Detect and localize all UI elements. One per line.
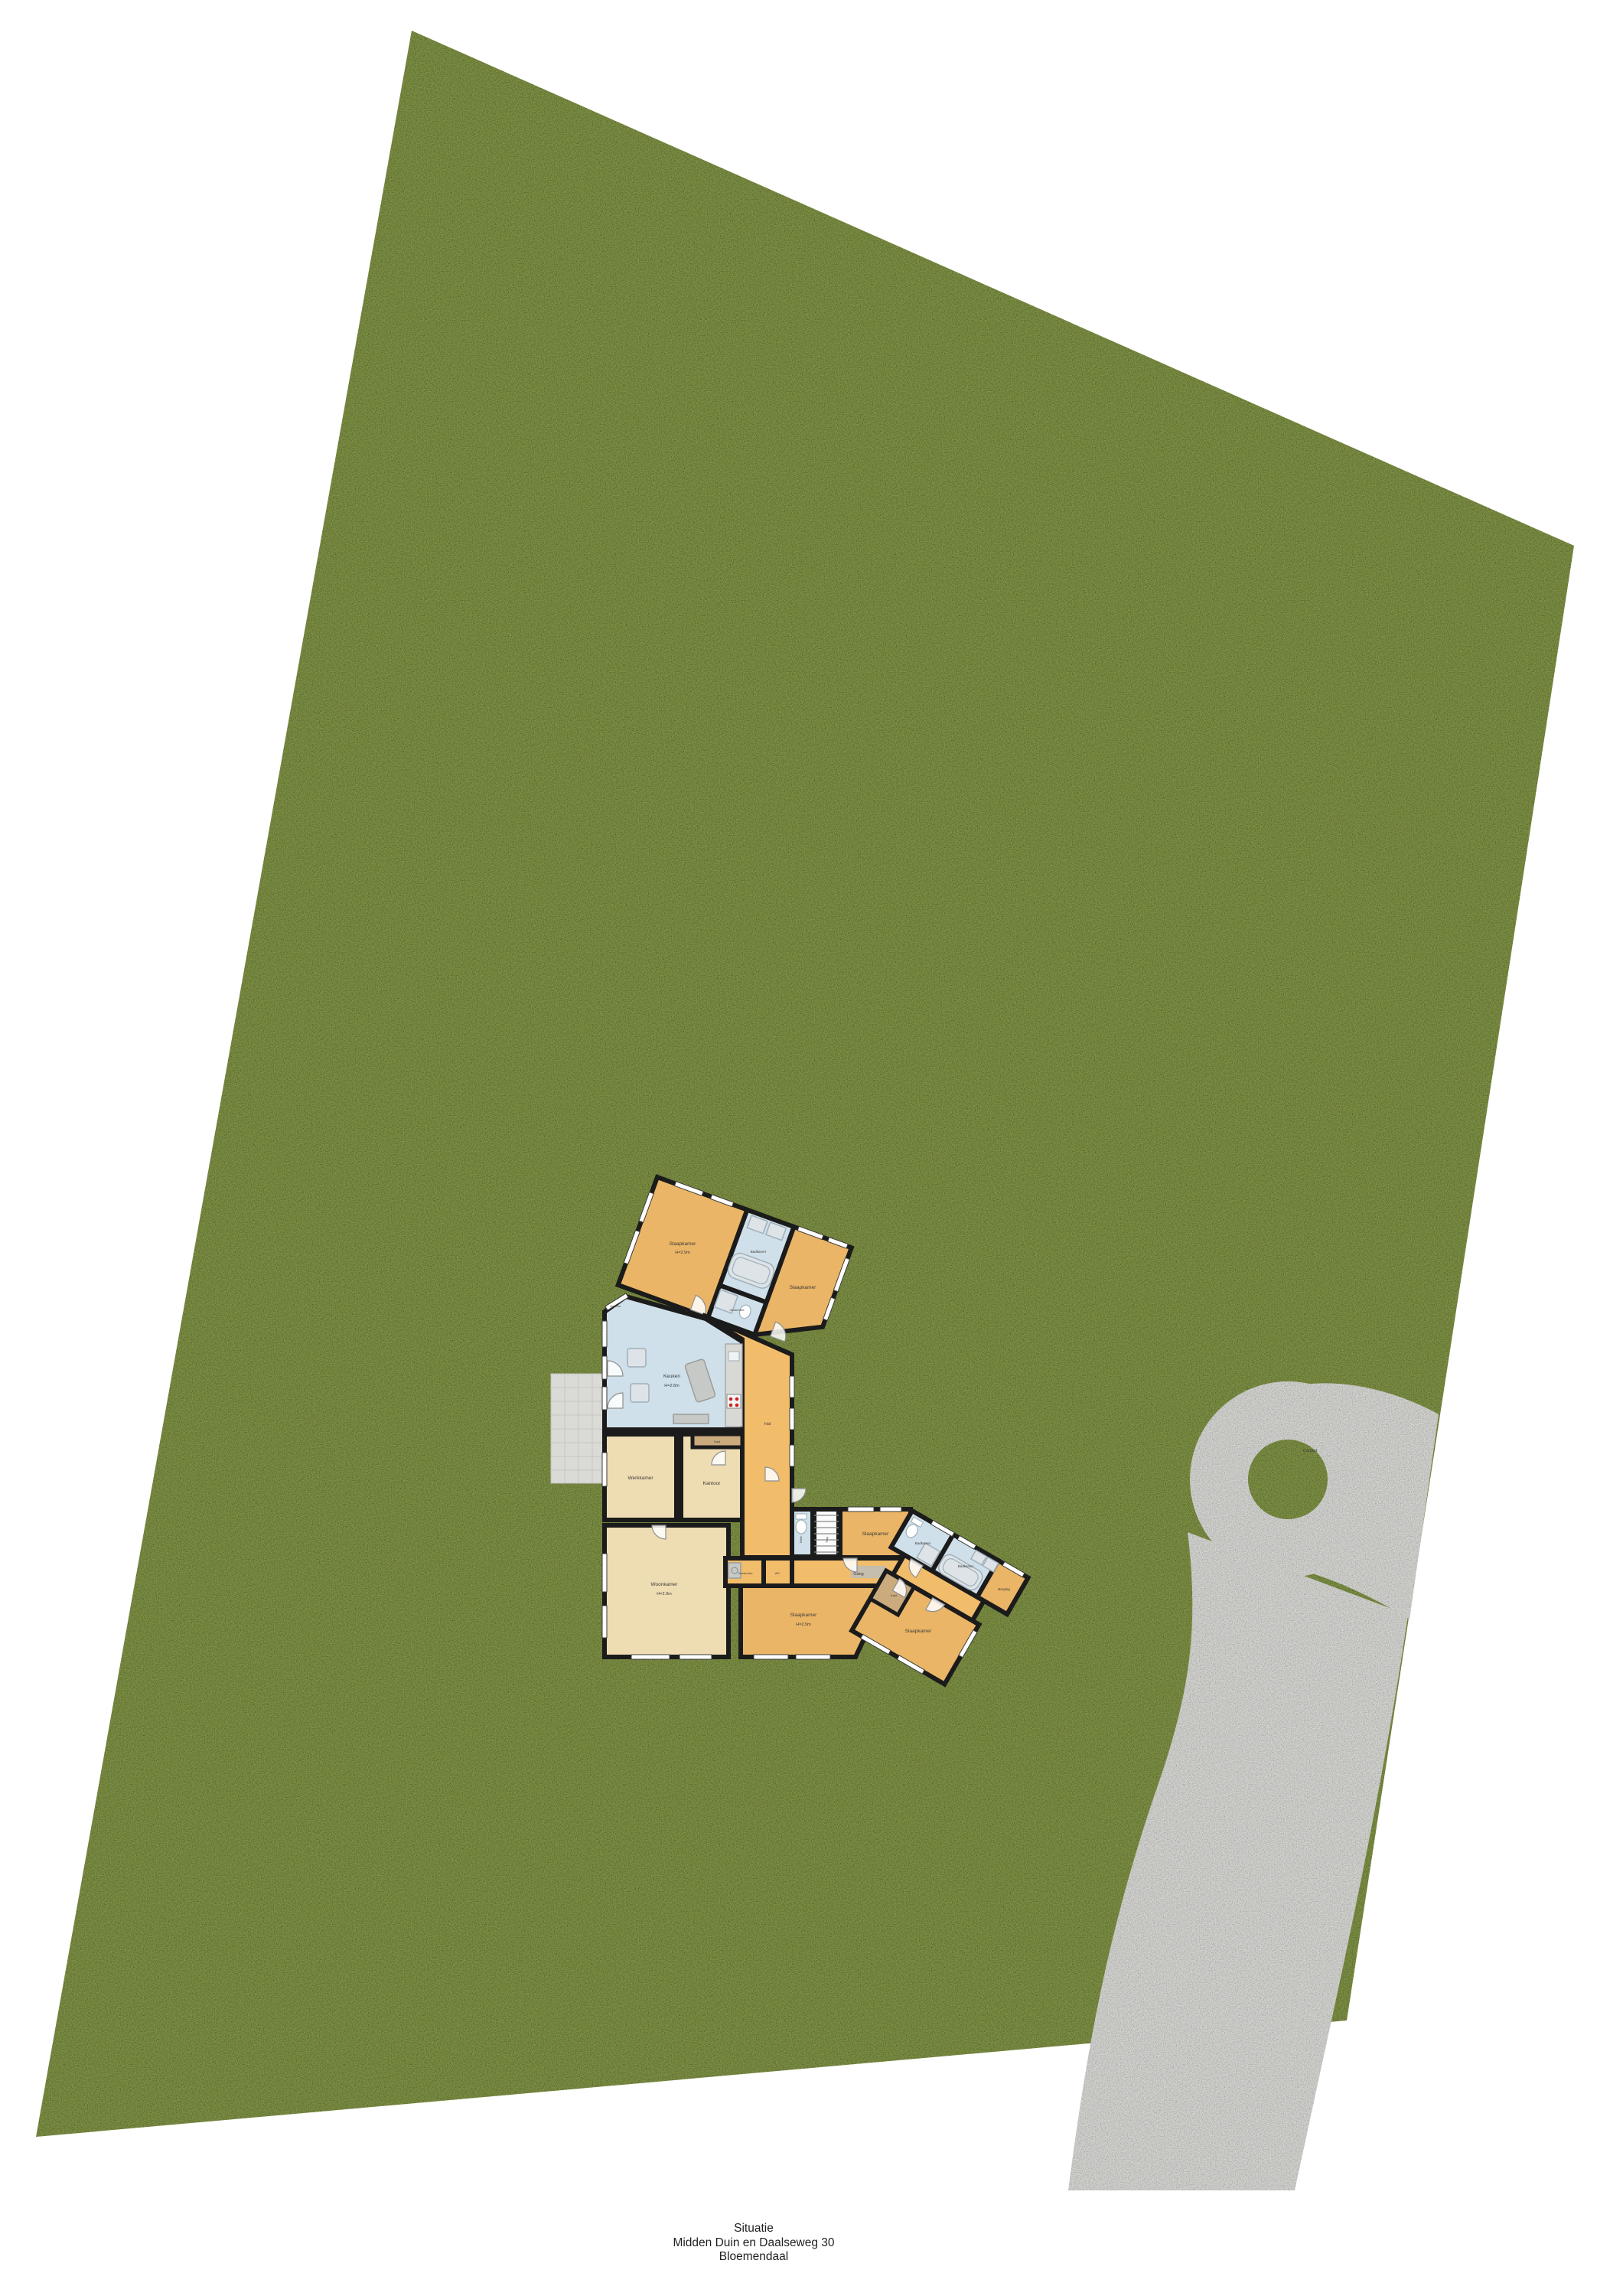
toilet-icon bbox=[796, 1520, 807, 1534]
terrace bbox=[551, 1374, 606, 1483]
gang-label: Gang bbox=[853, 1572, 863, 1577]
window bbox=[602, 1554, 607, 1592]
woonkamer-label: Woonkamer bbox=[651, 1582, 679, 1587]
kast-noord-label: Kast bbox=[714, 1440, 721, 1443]
burner bbox=[729, 1404, 733, 1407]
trap-label: Trap bbox=[825, 1536, 829, 1543]
armchair-icon bbox=[627, 1349, 646, 1367]
woonkamer-dim: H=2.9m bbox=[657, 1592, 672, 1596]
slaapkamer-midden-label: Slaapkamer bbox=[790, 1613, 818, 1618]
werkkamer-label: Werkkamer bbox=[627, 1476, 653, 1481]
caption: Situatie Midden Duin en Daalseweg 30 Blo… bbox=[673, 2222, 834, 2263]
keuken-wall-dim: H=2.6m bbox=[610, 1304, 621, 1308]
stove-icon bbox=[727, 1394, 741, 1408]
slaapkamer-nw-label: Slaapkamer bbox=[670, 1241, 697, 1247]
slaapkamer-nw-dim: H=2.9m bbox=[675, 1251, 690, 1255]
window bbox=[848, 1507, 874, 1512]
caption-address: Midden Duin en Daalseweg 30 bbox=[673, 2236, 834, 2249]
window bbox=[602, 1321, 607, 1347]
badkamer-oost1-label: Badkamer bbox=[915, 1541, 931, 1545]
slaapkamer-oost-label: Slaapkamer bbox=[862, 1531, 890, 1537]
window bbox=[602, 1606, 607, 1638]
kantoor-label: Kantoor bbox=[703, 1481, 722, 1486]
burner bbox=[729, 1397, 733, 1401]
toilet-label: Toilet bbox=[799, 1535, 803, 1543]
window bbox=[680, 1655, 712, 1659]
window bbox=[796, 1655, 830, 1659]
slaapkamer-zo-label: Slaapkamer bbox=[905, 1629, 933, 1634]
situatie-plan: Carport bbox=[0, 0, 1623, 2296]
armchair-icon bbox=[631, 1384, 649, 1402]
burner bbox=[735, 1397, 739, 1401]
slaapkamer-midden-dim: H=2.9m bbox=[796, 1623, 811, 1627]
burner bbox=[735, 1404, 739, 1407]
keuken-label: Keuken bbox=[663, 1374, 680, 1379]
window bbox=[790, 1408, 794, 1430]
hal-label: Hal bbox=[764, 1422, 771, 1427]
window bbox=[880, 1507, 901, 1512]
window bbox=[790, 1376, 794, 1397]
grass-plot bbox=[0, 0, 1623, 2296]
room-trap bbox=[814, 1509, 839, 1557]
site-plan-canvas: Carport bbox=[0, 0, 1623, 2296]
caption-city: Bloemendaal bbox=[719, 2250, 788, 2263]
terrace-door bbox=[602, 1356, 607, 1379]
window bbox=[631, 1655, 670, 1659]
grass-texture bbox=[0, 0, 1623, 2296]
keuken-dim: H=2.8m bbox=[664, 1384, 680, 1388]
garderobe-noord-label: Garderobe bbox=[729, 1308, 745, 1312]
garderobe-zuid-label: Garderobe bbox=[738, 1571, 753, 1575]
kast-zuid-label: Kast bbox=[891, 1593, 898, 1597]
terrace-door bbox=[602, 1387, 607, 1410]
carport-label: Carport bbox=[1303, 1449, 1318, 1453]
window bbox=[754, 1655, 788, 1659]
room-woonkamer bbox=[605, 1525, 728, 1657]
slaapkamer-no-label: Slaapkamer bbox=[790, 1285, 817, 1290]
badkamer-oost2-label: Badkamer bbox=[958, 1564, 974, 1568]
window bbox=[602, 1453, 607, 1486]
wc-label: WC bbox=[775, 1571, 781, 1575]
berging-label: Berging bbox=[998, 1587, 1010, 1591]
caption-title: Situatie bbox=[734, 2222, 774, 2235]
toilet-tank bbox=[796, 1514, 807, 1519]
sideboard-icon bbox=[673, 1414, 709, 1424]
badkamer-noord-label: Badkamer bbox=[751, 1250, 767, 1254]
window bbox=[790, 1445, 794, 1466]
kitchen-sink-icon bbox=[728, 1352, 739, 1361]
washer-icon bbox=[728, 1563, 741, 1578]
